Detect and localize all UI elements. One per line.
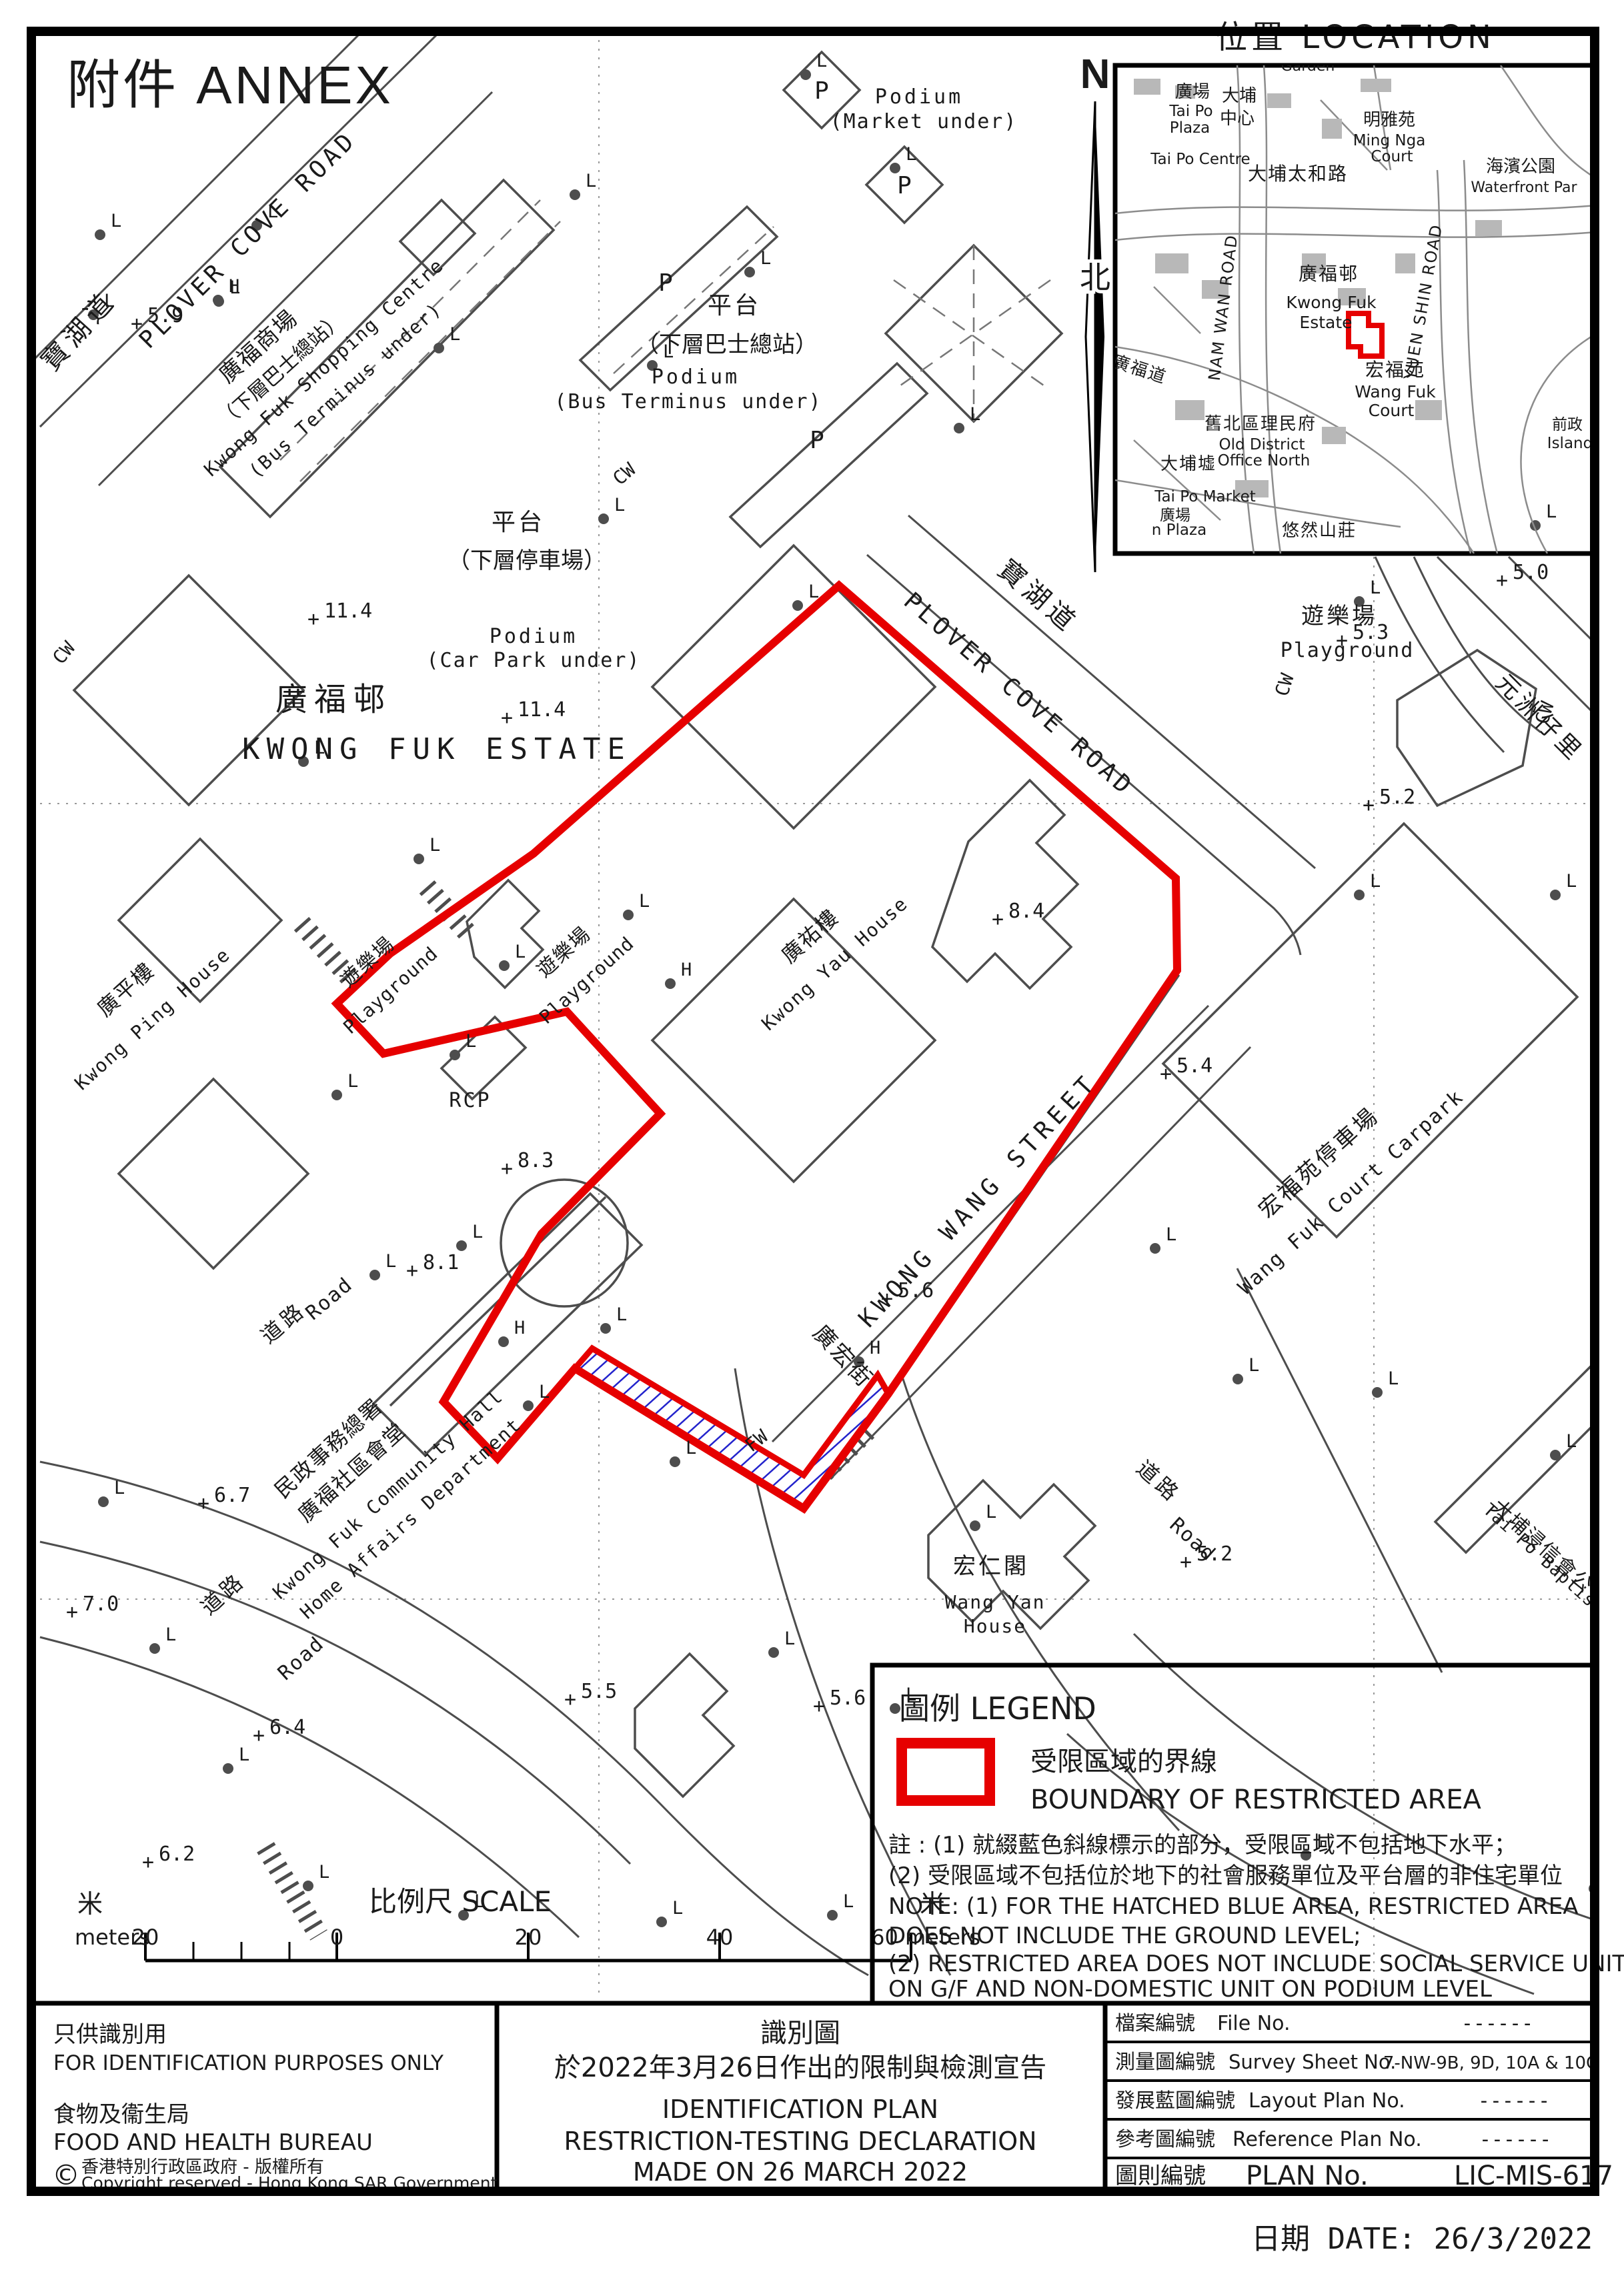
lamp-post-marker: L <box>165 1624 176 1645</box>
legend-boundary-zh: 受限區域的界線 <box>1030 1747 1217 1777</box>
inset-label: Wang Fuk <box>1355 382 1436 401</box>
map-label: (Market under) <box>830 110 1018 133</box>
spot-height-cross: + <box>307 608 319 631</box>
north-n-label: N <box>1080 51 1110 97</box>
legend-note-4: DOES NOT INCLUDE THE GROUND LEVEL; <box>888 1923 1361 1949</box>
inset-label: Waterfront Par <box>1471 179 1577 196</box>
map-label: PLOVER COVE ROAD <box>898 588 1139 802</box>
parking-marker: P <box>658 269 673 297</box>
legend-boundary-symbol <box>902 1743 990 1801</box>
map-label: House <box>964 1615 1026 1637</box>
tb-copyright-symbol: © <box>52 2159 80 2191</box>
lamp-post-marker: L <box>1388 1368 1399 1389</box>
plan-date: 日期 DATE: 26/3/2022 <box>1251 2222 1593 2256</box>
parking-marker: P <box>814 77 829 105</box>
scale-20a: 20 <box>132 1925 159 1950</box>
map-label: (Bus Terminus under) <box>554 390 822 413</box>
lamp-post-marker: L <box>760 248 771 269</box>
survey-point <box>1233 1374 1243 1384</box>
lamp-post-marker: L <box>686 1438 696 1458</box>
tb-r4-val: ------ <box>1479 2128 1551 2151</box>
inset-label: 大埔 <box>1222 86 1257 106</box>
inset-label: 宏福苑 <box>1365 359 1425 381</box>
spot-height-value: 8.1 <box>423 1251 459 1274</box>
spot-height-cross: + <box>992 908 1004 931</box>
building-outlines <box>74 52 1624 1797</box>
map-label: Kwong Ping House <box>70 944 234 1094</box>
survey-point <box>970 1520 980 1531</box>
survey-point <box>450 1050 460 1060</box>
map-label: 平台 <box>492 509 545 536</box>
spot-height-cross: + <box>1160 1062 1172 1086</box>
tb-r2-val: 7-NW-9B, 9D, 10A & 10C <box>1383 2053 1598 2073</box>
survey-point <box>369 1270 380 1280</box>
inset-label: YUEN SHIN ROAD <box>1401 222 1447 381</box>
tb-r4-zh: 參考圖編號 <box>1115 2128 1215 2151</box>
hydrant-marker: H <box>870 1338 880 1358</box>
inset-label: n Plaza <box>1152 521 1206 539</box>
inset-label: Tai Po Market <box>1154 488 1256 505</box>
lamp-post-marker: L <box>639 891 650 912</box>
survey-point <box>456 1240 467 1251</box>
scale-title: 比例尺 SCALE <box>369 1885 552 1918</box>
spot-height-value: 5.5 <box>581 1680 617 1703</box>
spot-height-cross: + <box>1496 569 1508 592</box>
map-label: (Car Park under) <box>427 649 641 672</box>
tb-left-zh2: 食物及衞生局 <box>53 2101 189 2128</box>
lamp-post-marker: L <box>539 1382 550 1402</box>
spot-height-cross: + <box>501 1157 513 1180</box>
legend-boundary-en: BOUNDARY OF RESTRICTED AREA <box>1030 1785 1482 1815</box>
scale-40: 40 <box>706 1925 734 1950</box>
tb-mid-date-en: MADE ON 26 MARCH 2022 <box>633 2157 968 2187</box>
map-label: 元洲仔里 <box>1490 669 1589 768</box>
map-label: RCP <box>449 1089 491 1112</box>
survey-point <box>1550 890 1561 900</box>
spot-height-cross: + <box>406 1259 418 1282</box>
spot-height-value: 5.2 <box>1379 786 1415 809</box>
inset-label: Kwong Fuk <box>1286 293 1377 312</box>
survey-point <box>623 910 634 920</box>
inset-label: 廣福道 <box>1110 351 1169 387</box>
lamp-post-marker: L <box>111 211 121 231</box>
spot-height-value: 8.4 <box>1008 900 1044 923</box>
tb-r3-zh: 發展藍圖編號 <box>1115 2089 1235 2113</box>
survey-point <box>827 1910 838 1921</box>
spot-height-value: 7.0 <box>83 1592 119 1616</box>
tb-r1-val: ------ <box>1461 2012 1533 2035</box>
survey-point <box>670 1456 680 1467</box>
tb-r1-zh: 檔案編號 <box>1115 2012 1195 2035</box>
legend-note-3: NOTE: (1) FOR THE HATCHED BLUE AREA, RES… <box>888 1893 1579 1920</box>
lamp-post-marker: L <box>986 1502 996 1522</box>
spot-height-value: 11.4 <box>324 600 372 623</box>
lamp-post-marker: L <box>1566 1431 1577 1452</box>
spot-height-value: 6.2 <box>159 1843 195 1866</box>
map-label: 遊樂場 <box>1301 603 1377 630</box>
survey-point <box>149 1643 160 1654</box>
tb-r1-en: File No. <box>1217 2012 1291 2035</box>
inset-label: 舊北區理民府 <box>1204 414 1317 434</box>
spot-height-cross: + <box>253 1724 265 1747</box>
inset-label: Estate <box>1299 313 1352 332</box>
lamp-post-marker: L <box>1606 668 1617 689</box>
map-label: CW <box>1271 671 1299 699</box>
inset-label: Island <box>1547 435 1593 452</box>
spot-height-value: 5.6 <box>830 1686 866 1710</box>
map-label: 宏仁閣 <box>953 1553 1029 1580</box>
survey-point <box>98 1496 109 1507</box>
title-block: 只供識別用 FOR IDENTIFICATION PURPOSES ONLY 食… <box>31 2003 1613 2193</box>
inset-label: Court <box>1369 401 1415 420</box>
lamp-post-marker: L <box>970 404 980 425</box>
inset-label: 悠然山莊 <box>1282 521 1357 541</box>
map-label: （下層停車場） <box>448 547 606 574</box>
survey-point <box>954 423 964 433</box>
lamp-post-marker: L <box>472 1222 483 1242</box>
spot-height-cross: + <box>813 1694 825 1718</box>
hydrant-marker: H <box>681 960 692 980</box>
inset-label: 明雅苑 <box>1363 110 1415 130</box>
spot-height-cross: + <box>1363 794 1375 817</box>
tb-r5-zh: 圖則編號 <box>1115 2163 1206 2189</box>
inset-label: Tai Po <box>1168 103 1212 120</box>
survey-point <box>523 1400 534 1411</box>
inset-label: Garden <box>1281 58 1335 75</box>
annex-title: 附件 ANNEX <box>67 55 393 115</box>
north-arrow: N 北 <box>1080 51 1110 572</box>
inset-label: 中心 <box>1220 109 1255 129</box>
lamp-post-marker: L <box>616 1304 627 1325</box>
survey-point <box>1354 890 1365 900</box>
lamp-post-marker: L <box>1166 1224 1176 1245</box>
tb-r2-zh: 測量圖編號 <box>1115 2051 1215 2074</box>
survey-point <box>95 229 105 240</box>
tb-r3-en: Layout Plan No. <box>1249 2089 1405 2113</box>
map-label: Podium <box>652 365 740 389</box>
spot-height-value: 6.7 <box>214 1484 250 1507</box>
spot-height-cross: + <box>564 1688 576 1711</box>
lamp-post-marker: L <box>1370 578 1381 598</box>
legend-note-5: (2) RESTRICTED AREA DOES NOT INCLUDE SOC… <box>888 1951 1624 1977</box>
map-label: Wang Yan <box>945 1591 1046 1613</box>
survey-point <box>223 1763 233 1774</box>
map-label: Road <box>273 1632 329 1685</box>
survey-point <box>570 189 580 200</box>
survey-point <box>1550 1450 1561 1460</box>
spot-height-cross: + <box>66 1600 78 1624</box>
hydrant-marker: H <box>514 1318 525 1338</box>
spot-height-value: 6.4 <box>269 1716 305 1739</box>
inset-label: 廣福邨 <box>1299 263 1359 285</box>
spot-height-cross: + <box>501 706 513 730</box>
spot-height-value: 5.0 <box>1513 561 1549 584</box>
tb-left-en1: FOR IDENTIFICATION PURPOSES ONLY <box>53 2051 444 2075</box>
spot-height-value: 8.3 <box>518 1149 554 1172</box>
map-label: Tai Po Baptist Publ <box>1479 1500 1624 1656</box>
inset-label: Old District <box>1219 436 1305 453</box>
inset-label: 廣場 <box>1175 82 1210 102</box>
lamp-post-marker: L <box>114 1478 125 1498</box>
map-label: Podium <box>490 625 578 648</box>
lamp-post-marker: L <box>347 1071 358 1092</box>
spot-height-cross: + <box>197 1492 209 1515</box>
legend-note-6: ON G/F AND NON-DOMESTIC UNIT ON PODIUM L… <box>888 1976 1492 2003</box>
lamp-post-marker: L <box>430 835 440 856</box>
lamp-post-marker: L <box>808 582 819 602</box>
inset-blocks <box>1134 79 1502 497</box>
map-label: 廣宏街 <box>808 1320 879 1394</box>
survey-point <box>656 1917 667 1927</box>
survey-point <box>499 960 510 971</box>
map-label: Podium <box>875 85 963 109</box>
map-label: KWONG FUK ESTATE <box>242 732 632 766</box>
spot-height-cross: + <box>142 1851 154 1874</box>
survey-point <box>792 600 803 611</box>
survey-point <box>598 513 609 524</box>
north-needle-left <box>1086 101 1095 572</box>
scale-0: 0 <box>330 1925 343 1950</box>
lamp-post-marker: L <box>672 1898 683 1919</box>
lamp-post-marker: L <box>385 1251 396 1272</box>
lamp-post-marker: L <box>1566 871 1577 892</box>
survey-point <box>414 854 424 864</box>
legend-note-1: 註 : (1) 就綴藍色斜線標示的部分，受限區域不包括地下水平； <box>888 1832 1517 1859</box>
lamp-post-marker: L <box>450 324 460 345</box>
tb-mid-title-zh: 識別圖 <box>760 2018 840 2049</box>
tb-r3-val: ------ <box>1478 2089 1550 2113</box>
scale-20b: 20 <box>515 1925 542 1950</box>
inset-label: 大埔墟 <box>1160 454 1216 474</box>
map-label: 道路 <box>196 1567 251 1620</box>
inset-label: Ming Nga <box>1353 132 1426 149</box>
survey-point <box>1150 1243 1160 1254</box>
hydrant-marker: H <box>229 276 239 297</box>
survey-point <box>665 978 676 989</box>
map-label: 平台 <box>708 292 761 319</box>
parking-marker: P <box>810 427 824 454</box>
lamp-post-marker: L <box>816 51 827 71</box>
spot-height-cross: + <box>1180 1550 1192 1574</box>
lamp-post-marker: L <box>319 1862 329 1883</box>
lamp-post-marker: L <box>843 1891 854 1912</box>
lamp-post-marker: L <box>239 1745 249 1765</box>
map-label: 廣福邨 <box>275 681 391 718</box>
identification-plan-page: +5.9+11.4+11.4+8.4+5.0+5.3+5.2+5.4+8.3+8… <box>0 0 1624 2290</box>
survey-point <box>498 1336 509 1347</box>
map-label: 寶湖道 <box>35 285 123 377</box>
tb-left-zh1: 只供識別用 <box>53 2021 167 2048</box>
lamp-post-marker: L <box>515 942 526 962</box>
inset-label: Tai Po Centre <box>1150 151 1250 168</box>
tb-mid-sub-zh: 於2022年3月26日作出的限制與檢測宣告 <box>554 2053 1046 2083</box>
lamp-post-marker: L <box>784 1628 795 1649</box>
map-label: （下層巴士總站） <box>636 331 818 358</box>
survey-point <box>213 295 223 305</box>
inset-label: NAM WAN ROAD <box>1205 233 1242 382</box>
legend-box: 圖例 LEGEND 受限區域的界線 BOUNDARY OF RESTRICTED… <box>872 1665 1624 2003</box>
tb-left-en2: FOOD AND HEALTH BUREAU <box>53 2129 373 2156</box>
survey-point <box>331 1090 342 1100</box>
inset-restricted-boundary <box>1349 313 1382 356</box>
location-title: 位置 LOCATION <box>1215 19 1495 56</box>
parking-marker: P <box>897 172 912 199</box>
map-label: CW <box>48 637 79 668</box>
survey-point <box>1372 1387 1383 1398</box>
inset-label: Office North <box>1218 452 1311 469</box>
tb-r2-en: Survey Sheet No. <box>1229 2051 1396 2073</box>
legend-note-2: (2) 受限區域不包括位於地下的社會服務單位及平台層的非住宅單位 <box>888 1863 1563 1889</box>
map-label: 道路 <box>1131 1455 1186 1508</box>
survey-point <box>744 267 755 277</box>
legend-title: 圖例 LEGEND <box>899 1690 1096 1727</box>
lamp-post-marker: L <box>906 144 916 165</box>
inset-label: Court <box>1371 148 1413 165</box>
tb-mid-title-en: IDENTIFICATION PLAN <box>662 2095 938 2124</box>
survey-point <box>800 69 811 80</box>
survey-point <box>600 1323 611 1334</box>
lamp-post-marker: L <box>1546 501 1557 522</box>
lamp-post-marker: L <box>614 495 625 515</box>
main-map: +5.9+11.4+11.4+8.4+5.0+5.3+5.2+5.4+8.3+8… <box>30 28 1624 1994</box>
tb-mid-sub-en: RESTRICTION-TESTING DECLARATION <box>564 2127 1036 2156</box>
map-label: 道路 <box>256 1297 311 1349</box>
survey-point <box>434 343 444 353</box>
map-label: KWONG WANG STREET <box>854 1068 1103 1333</box>
survey-point <box>768 1647 779 1658</box>
map-label: CW <box>608 458 640 489</box>
lamp-post-marker: L <box>466 1031 476 1052</box>
spot-height-value: 11.4 <box>518 698 566 722</box>
lamp-post-marker: L <box>1605 1865 1615 1885</box>
location-inset-map: 廣場Tai PoPlaza大埔中心Garden明雅苑Ming NgaCourtT… <box>1110 58 1597 553</box>
inset-label: 海濱公園 <box>1486 157 1555 177</box>
inset-label: 大埔太和路 <box>1248 163 1348 185</box>
inset-label: 前政 <box>1552 416 1583 433</box>
north-zh-label: 北 <box>1080 259 1110 295</box>
plan-canvas: +5.9+11.4+11.4+8.4+5.0+5.3+5.2+5.4+8.3+8… <box>0 0 1624 2290</box>
lamp-post-marker: L <box>586 171 596 191</box>
survey-point <box>303 1881 313 1891</box>
lamp-post-marker: L <box>1249 1355 1259 1376</box>
scale-unit-left: 米 <box>77 1889 103 1919</box>
lamp-post-marker: L <box>1370 871 1381 892</box>
map-label: Playground <box>1281 639 1415 662</box>
spot-height-value: 5.4 <box>1176 1054 1212 1078</box>
tb-r4-en: Reference Plan No. <box>1233 2128 1422 2151</box>
north-needle-right <box>1095 101 1104 572</box>
inset-label: Plaza <box>1170 119 1210 137</box>
map-label: Road <box>301 1273 357 1325</box>
